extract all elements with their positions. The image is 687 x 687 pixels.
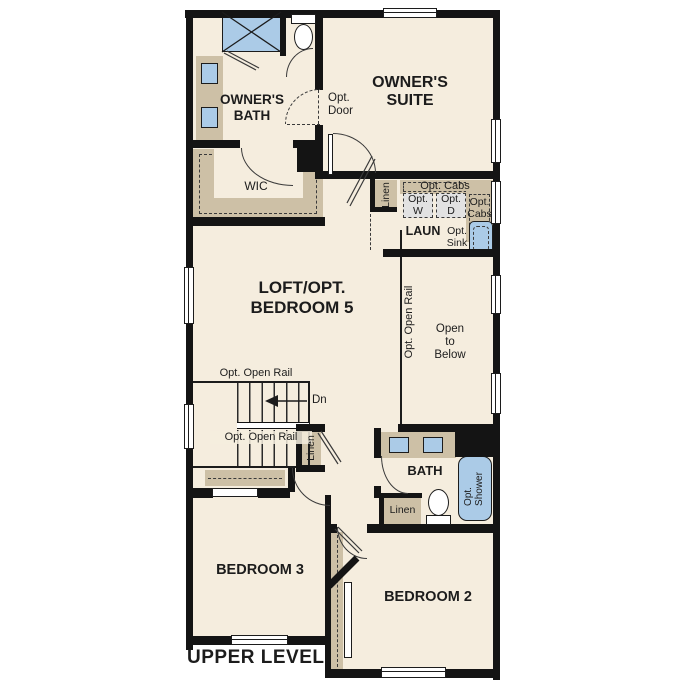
bedroom2-closet-rod	[337, 535, 338, 667]
annotation-opt-open-rail-bottom: Opt. Open Rail	[210, 431, 312, 444]
annotation-opt-sink: Opt. Sink	[443, 225, 471, 249]
window	[491, 373, 501, 414]
toilet-bowl	[294, 24, 313, 50]
wall	[325, 527, 331, 678]
annotation-linen-hall: Linen	[305, 431, 317, 465]
window	[231, 635, 288, 645]
window	[383, 8, 437, 18]
annotation-linen-laundry: Linen	[380, 178, 392, 212]
wall	[258, 488, 290, 498]
annotation-opt-cabs-top: Opt. Cabs	[402, 180, 488, 193]
opt-door-jamb-dashed	[318, 90, 319, 124]
toilet-tank	[426, 515, 451, 525]
wall	[293, 140, 323, 148]
closet-door-panel	[212, 488, 258, 497]
window	[184, 267, 194, 324]
annotation-opt-open-rail-top: Opt. Open Rail	[205, 367, 307, 380]
room-label-owners-suite: OWNER'S SUITE	[344, 74, 476, 111]
window	[184, 404, 194, 449]
room-label-bath: BATH	[397, 464, 453, 479]
wall	[185, 10, 500, 18]
sink	[423, 437, 443, 453]
annotation-opt-dryer: Opt. D	[436, 193, 466, 217]
annotation-opt-shower: Opt. Shower	[462, 460, 486, 518]
window	[381, 667, 446, 678]
wall	[315, 10, 323, 90]
floor-plan: OWNER'S BATH Opt. Door OWNER'S SUITE WIC…	[0, 0, 687, 687]
sink	[389, 437, 409, 453]
bedroom3-closet-rod	[208, 478, 282, 479]
cased-opening-dashed	[370, 214, 371, 250]
room-label-loft: LOFT/OPT. BEDROOM 5	[222, 278, 382, 317]
room-label-owners-bath: OWNER'S BATH	[200, 92, 304, 123]
opt-door-threshold-dashed	[287, 124, 320, 125]
closet-door-panel	[344, 582, 352, 658]
wall	[280, 10, 286, 56]
wall	[383, 249, 500, 257]
annotation-opt-cabs-side: Opt. Cabs	[466, 196, 493, 220]
wall	[193, 488, 213, 498]
wall	[379, 493, 422, 498]
wall	[297, 148, 323, 172]
toilet-bowl	[428, 489, 449, 516]
annotation-opt-open-rail-mid: Opt. Open Rail	[402, 277, 416, 367]
plan-title: UPPER LEVEL	[187, 647, 324, 669]
window	[491, 119, 501, 163]
wall	[367, 524, 500, 533]
sink	[201, 63, 218, 84]
wall	[186, 217, 325, 226]
room-label-bedroom2: BEDROOM 2	[362, 589, 494, 606]
room-label-wic: WIC	[230, 180, 282, 194]
toilet-tank	[291, 14, 316, 24]
room-label-open-to-below: Open to Below	[424, 323, 476, 363]
annotation-opt-washer: Opt. W	[403, 193, 433, 217]
wall	[374, 428, 381, 458]
window	[491, 275, 501, 314]
room-label-bedroom3: BEDROOM 3	[200, 562, 320, 579]
wall	[193, 140, 240, 148]
room-label-laundry: LAUN	[400, 224, 446, 238]
wall	[315, 125, 323, 141]
stairs-upper-flight	[237, 383, 309, 422]
wall	[186, 10, 193, 650]
annotation-down: Dn	[312, 394, 327, 407]
wall	[493, 10, 500, 680]
shower	[222, 12, 281, 52]
wall	[455, 428, 500, 457]
wall	[325, 524, 337, 533]
annotation-linen-bath: Linen	[384, 504, 421, 516]
